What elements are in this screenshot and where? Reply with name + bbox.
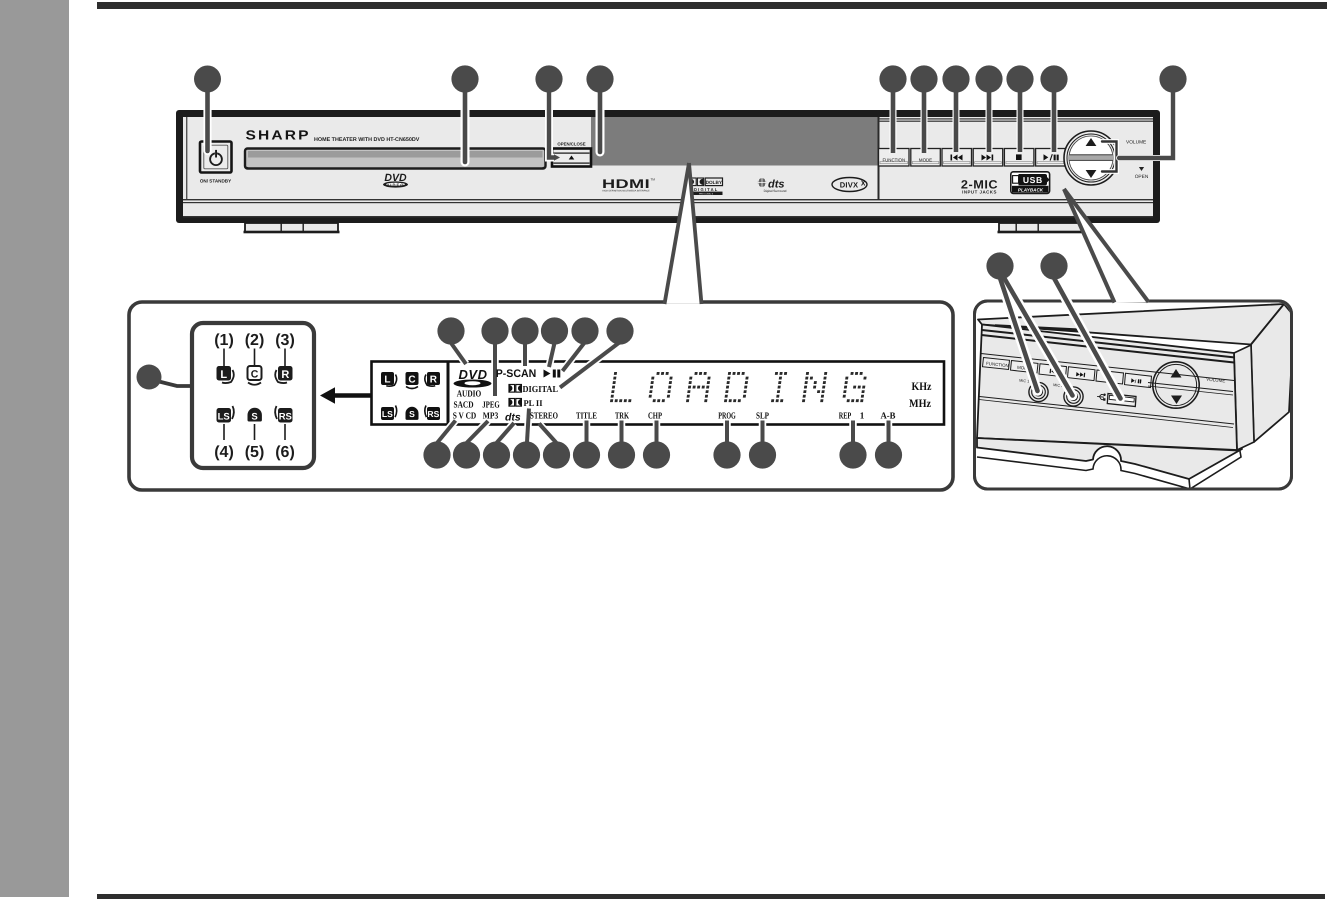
svg-text:OPEN/CLOSE: OPEN/CLOSE	[557, 142, 585, 147]
svg-text:PROG: PROG	[718, 411, 736, 421]
svg-text:HOME THEATER WITH DVD HT-CN650: HOME THEATER WITH DVD HT-CN650DV	[314, 137, 420, 143]
svg-text:RS: RS	[427, 409, 439, 419]
svg-text:S: S	[251, 412, 257, 423]
svg-text:AUDIO: AUDIO	[457, 389, 482, 399]
svg-text:L: L	[384, 375, 390, 386]
svg-text:OPEN: OPEN	[1135, 174, 1149, 180]
svg-text:DOLBY: DOLBY	[706, 180, 723, 185]
svg-text:R: R	[281, 369, 289, 381]
svg-text:C: C	[408, 375, 415, 386]
svg-text:DIGITAL: DIGITAL	[523, 384, 559, 394]
svg-text:VIDEO: VIDEO	[386, 182, 404, 187]
svg-text:INPUT JACKS: INPUT JACKS	[962, 190, 997, 195]
svg-text:DIGITAL: DIGITAL	[694, 187, 718, 192]
svg-text:CHP: CHP	[648, 411, 662, 421]
svg-text:PLAYBACK: PLAYBACK	[1018, 188, 1044, 193]
svg-text:KHz: KHz	[912, 381, 932, 393]
svg-text:FUNCTION: FUNCTION	[882, 158, 905, 163]
svg-text:HIGH DEFINITION MULTIMEDIA INT: HIGH DEFINITION MULTIMEDIA INTERFACE	[602, 189, 650, 192]
svg-text:JPEG: JPEG	[482, 400, 500, 410]
svg-text:SACD: SACD	[454, 400, 474, 410]
svg-text:C: C	[251, 369, 259, 381]
svg-text:STEREO: STEREO	[530, 411, 558, 421]
svg-text:dts: dts	[505, 412, 521, 424]
svg-text:USB: USB	[1023, 175, 1043, 185]
svg-text:ON/ STANDBY: ON/ STANDBY	[200, 179, 231, 184]
svg-text:1: 1	[860, 411, 865, 421]
svg-text:P-SCAN: P-SCAN	[496, 368, 537, 380]
svg-text:RS: RS	[279, 412, 292, 423]
svg-text:L: L	[220, 369, 227, 381]
svg-text:(6): (6)	[275, 444, 295, 461]
svg-text:TM: TM	[651, 178, 656, 182]
svg-text:MODE: MODE	[919, 158, 932, 163]
svg-text:A-B: A-B	[881, 411, 896, 421]
svg-text:(5): (5)	[245, 444, 265, 461]
svg-text:TRK: TRK	[615, 411, 630, 421]
svg-text:(1): (1)	[214, 332, 234, 349]
svg-text:S V CD: S V CD	[453, 411, 477, 421]
svg-text:LS: LS	[382, 409, 393, 419]
svg-text:(3): (3)	[275, 332, 295, 349]
svg-text:MHz: MHz	[909, 398, 931, 410]
svg-text:REP: REP	[839, 411, 852, 421]
svg-text:(4): (4)	[214, 444, 234, 461]
svg-text:LS: LS	[218, 412, 230, 423]
svg-text:PRO LOGIC II: PRO LOGIC II	[699, 192, 713, 195]
svg-text:(2): (2)	[245, 332, 265, 349]
svg-text:Digital Surround: Digital Surround	[764, 189, 787, 193]
svg-text:SLP: SLP	[756, 411, 769, 421]
svg-text:SHARP: SHARP	[246, 128, 311, 143]
svg-text:R: R	[430, 375, 438, 386]
svg-text:VOLUME: VOLUME	[1126, 140, 1146, 146]
svg-text:HDMI: HDMI	[602, 176, 650, 190]
svg-text:S: S	[409, 409, 415, 419]
svg-text:PL II: PL II	[524, 398, 544, 408]
svg-text:MP3: MP3	[483, 411, 499, 421]
svg-text:TITLE: TITLE	[576, 411, 597, 421]
svg-text:DIVX: DIVX	[840, 180, 859, 189]
